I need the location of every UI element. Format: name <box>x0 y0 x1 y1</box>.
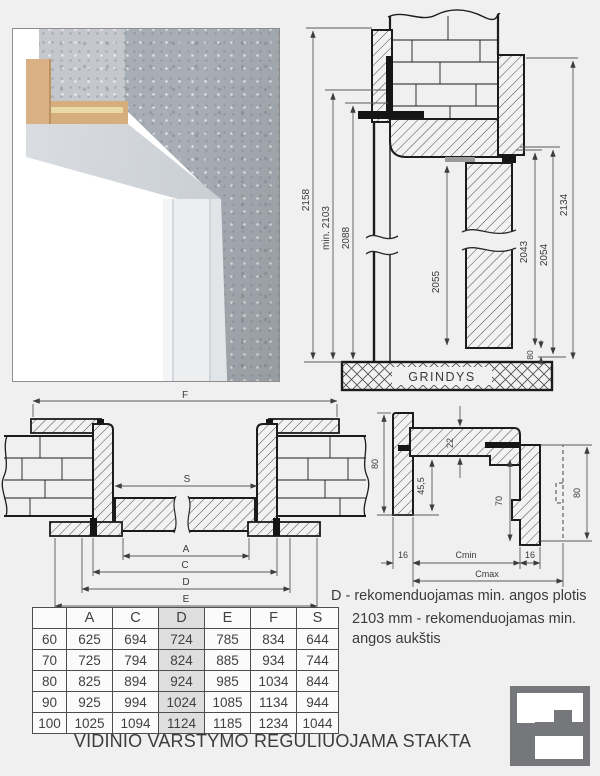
dim-2134: 2134 <box>559 193 570 216</box>
dim-d: D <box>182 577 189 588</box>
dim-2054: 2054 <box>539 243 550 266</box>
header-a: A <box>67 608 113 629</box>
dim-2043: 2043 <box>519 240 530 263</box>
dim-2088: 2088 <box>341 226 352 249</box>
cell: 725 <box>67 650 113 671</box>
cell: 90 <box>33 692 67 713</box>
dim-45-5: 45,5 <box>416 477 426 495</box>
header-d: D <box>159 608 205 629</box>
table-header-row: A C D E F S <box>33 608 339 629</box>
dim-70: 70 <box>494 496 504 506</box>
dim-e: E <box>183 594 190 605</box>
frame-head-assembly <box>358 30 524 177</box>
dim-a: A <box>183 544 190 555</box>
cell: 785 <box>205 629 251 650</box>
dim-16-right: 16 <box>525 550 535 560</box>
dim-c: C <box>181 560 188 571</box>
page-title: VIDINIO VARSTYMO REGULIUOJAMA STAKTA <box>0 731 545 752</box>
floor-bar: GRINDYS <box>342 362 552 390</box>
dim-80-left: 80 <box>370 459 380 469</box>
cell: 794 <box>113 650 159 671</box>
cell: 994 <box>113 692 159 713</box>
dim-22: 22 <box>445 438 455 448</box>
dim-cmax: Cmax <box>475 569 499 579</box>
dim-min-2103: min. 2103 <box>321 206 332 250</box>
dim-f: F <box>182 390 188 401</box>
cell: 1024 <box>159 692 205 713</box>
size-table: A C D E F S 60 625 694 724 785 834 644 7… <box>32 607 339 734</box>
header-f: F <box>251 608 297 629</box>
cell: 1085 <box>205 692 251 713</box>
dim-2055: 2055 <box>431 270 442 293</box>
cell: 625 <box>67 629 113 650</box>
table-row: 70 725 794 824 885 934 744 <box>33 650 339 671</box>
cell: 70 <box>33 650 67 671</box>
vertical-dimensions <box>304 28 578 365</box>
cell: 824 <box>159 650 205 671</box>
dim-16-left: 16 <box>398 550 408 560</box>
header-e: E <box>205 608 251 629</box>
table-row: 60 625 694 724 785 834 644 <box>33 629 339 650</box>
frame-corner-photo <box>12 28 280 382</box>
table-row: 80 825 894 924 985 1034 844 <box>33 671 339 692</box>
cell: 694 <box>113 629 159 650</box>
cell: 825 <box>67 671 113 692</box>
cell: 985 <box>205 671 251 692</box>
dim-s: S <box>184 474 191 485</box>
spec-sheet-page: GRINDYS 2158 min. 2103 2088 2055 <box>0 0 600 776</box>
cell: 1134 <box>251 692 297 713</box>
cell: 834 <box>251 629 297 650</box>
height-note-line1: 2103 mm - rekomenduojamas min. <box>352 609 592 629</box>
header-c: C <box>113 608 159 629</box>
cell: 924 <box>159 671 205 692</box>
dim-80-floor: 80 <box>525 350 535 360</box>
dim-2158: 2158 <box>301 188 312 211</box>
cell: 894 <box>113 671 159 692</box>
cell: 885 <box>205 650 251 671</box>
logo-band-shape <box>535 722 583 736</box>
header-s: S <box>297 608 339 629</box>
dim-80-right: 80 <box>572 488 582 498</box>
cell: 844 <box>297 671 339 692</box>
height-note: 2103 mm - rekomenduojamas min. angos auk… <box>352 609 592 649</box>
header-blank <box>33 608 67 629</box>
corner-detail-drawing: 80 22 45,5 70 80 16 Cmin 16 Cmax <box>365 398 600 590</box>
cell: 60 <box>33 629 67 650</box>
brand-logo <box>510 686 590 766</box>
photo-frame-jamb <box>163 199 229 381</box>
width-note: D - rekomenduojamas min. angos plotis <box>331 588 586 604</box>
wall-section <box>388 10 500 119</box>
cell: 644 <box>297 629 339 650</box>
cell: 80 <box>33 671 67 692</box>
logo-tab-shape <box>554 710 572 723</box>
floor-label: GRINDYS <box>408 370 475 384</box>
table-row: 90 925 994 1024 1085 1134 944 <box>33 692 339 713</box>
cell: 724 <box>159 629 205 650</box>
cell: 1034 <box>251 671 297 692</box>
vertical-section-drawing: GRINDYS 2158 min. 2103 2088 2055 <box>280 0 600 400</box>
vertical-dimension-labels: 2158 min. 2103 2088 2055 2043 2054 2134 … <box>301 188 570 359</box>
dim-cmin: Cmin <box>455 550 476 560</box>
cell: 944 <box>297 692 339 713</box>
cell: 744 <box>297 650 339 671</box>
height-note-line2: angos aukštis <box>352 629 592 649</box>
horizontal-section-drawing: F S A C D E <box>0 386 370 644</box>
cell: 925 <box>67 692 113 713</box>
logo-bar-shape <box>517 723 535 759</box>
photo-concrete-top <box>39 29 127 107</box>
cell: 934 <box>251 650 297 671</box>
